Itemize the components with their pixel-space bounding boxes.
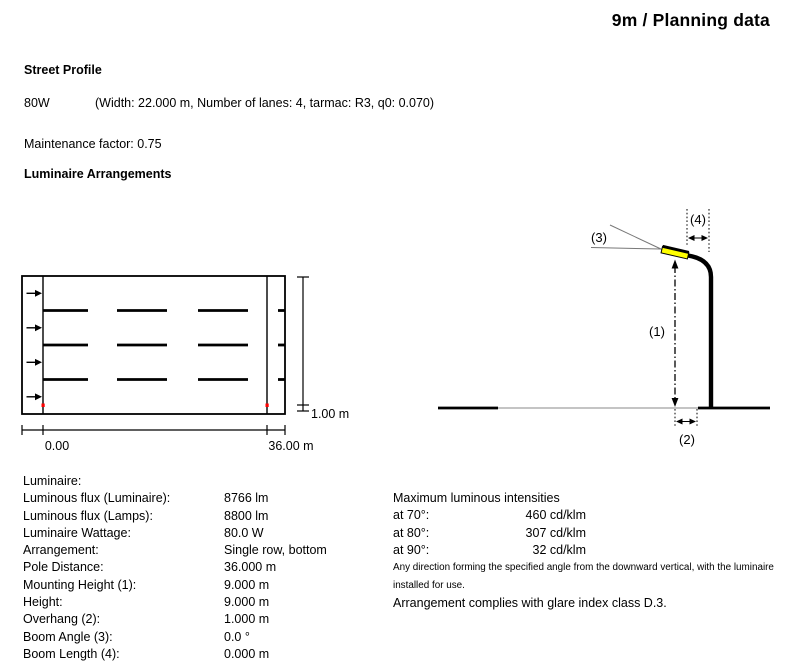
- boom-angle-leader-horizontal: [591, 248, 661, 250]
- page-title: 9m / Planning data: [612, 10, 770, 31]
- intensity-value: 460 cd/klm: [526, 507, 586, 524]
- boom-length-ref-label: (4): [690, 212, 706, 227]
- street-parameters: (Width: 22.000 m, Number of lanes: 4, ta…: [95, 96, 434, 110]
- item-label: Pole Distance:: [23, 559, 224, 576]
- item-value: 8766 lm: [224, 490, 268, 507]
- mounting-height-ref-label: (1): [649, 324, 665, 339]
- overhang-ref-label: (2): [679, 432, 695, 447]
- item-label: Mounting Height (1):: [23, 577, 224, 594]
- item-label: Height:: [23, 594, 224, 611]
- angle-label: at 70°:: [393, 507, 429, 524]
- item-label: Luminaire Wattage:: [23, 525, 224, 542]
- horizontal-dimension: [22, 425, 285, 435]
- list-item: Height: 9.000 m: [23, 594, 393, 611]
- list-heading-row: Luminaire:: [23, 473, 393, 490]
- overhang-dimension: [675, 409, 697, 426]
- origin-label: 0.00: [45, 439, 69, 453]
- item-value: 8800 lm: [224, 508, 268, 525]
- item-value: 0.0 °: [224, 629, 250, 646]
- item-label: Overhang (2):: [23, 611, 224, 628]
- item-value: 9.000 m: [224, 594, 269, 611]
- boom-angle-ref-label: (3): [591, 230, 607, 245]
- arrow-right-icon: [27, 393, 43, 400]
- max-intensities-block: Maximum luminous intensities at 70°: 460…: [393, 490, 791, 612]
- item-value: 80.0 W: [224, 525, 264, 542]
- arrow-right-icon: [27, 359, 43, 366]
- intensity-value: 32 cd/klm: [533, 542, 587, 559]
- glare-compliance-note: Arrangement complies with glare index cl…: [393, 595, 791, 612]
- list-item: Luminous flux (Luminaire): 8766 lm: [23, 490, 393, 507]
- item-label: Boom Length (4):: [23, 646, 224, 663]
- maintenance-factor: Maintenance factor: 0.75: [24, 137, 162, 151]
- street-plan-diagram: 1.00 m 0.00 36.00 m: [0, 250, 370, 465]
- intensities-footnote: Any direction forming the specified angl…: [393, 559, 791, 594]
- item-label: Arrangement:: [23, 542, 224, 559]
- luminaire-head: [661, 246, 689, 259]
- pole-distance-label: 36.00 m: [268, 439, 313, 453]
- boom-angle-leader-slanted: [610, 225, 662, 250]
- luminaire-arrangements-heading: Luminaire Arrangements: [24, 167, 172, 181]
- item-label: Luminous flux (Lamps):: [23, 508, 224, 525]
- list-item: Boom Length (4): 0.000 m: [23, 646, 393, 663]
- verge-width-label: 1.00 m: [311, 407, 349, 421]
- list-item: Luminous flux (Lamps): 8800 lm: [23, 508, 393, 525]
- angle-label: at 90°:: [393, 542, 429, 559]
- item-value: Single row, bottom: [224, 542, 327, 559]
- pole-elevation-diagram: (4) (3) (1) (2): [420, 195, 800, 460]
- intensity-value: 307 cd/klm: [526, 525, 586, 542]
- intensity-row: at 90°: 32 cd/klm: [393, 542, 586, 559]
- item-label: Boom Angle (3):: [23, 629, 224, 646]
- list-item: Mounting Height (1): 9.000 m: [23, 577, 393, 594]
- luminaire-heading: Luminaire:: [23, 473, 81, 490]
- item-label: Luminous flux (Luminaire):: [23, 490, 224, 507]
- drive-direction-arrows: [27, 290, 43, 400]
- street-wattage: 80W: [24, 96, 50, 110]
- luminaire-data-list: Luminaire: Luminous flux (Luminaire): 87…: [23, 473, 393, 663]
- mounting-height-dimension: [672, 260, 679, 408]
- street-profile-heading: Street Profile: [24, 63, 102, 77]
- lane-dividers: [43, 311, 285, 380]
- street-profile-row: 80W (Width: 22.000 m, Number of lanes: 4…: [24, 96, 544, 110]
- pole: [688, 256, 711, 409]
- arrow-right-icon: [27, 290, 43, 297]
- intensity-row: at 70°: 460 cd/klm: [393, 507, 586, 524]
- arrow-right-icon: [27, 324, 43, 331]
- max-intensities-heading: Maximum luminous intensities: [393, 490, 791, 507]
- item-value: 0.000 m: [224, 646, 269, 663]
- item-value: 9.000 m: [224, 577, 269, 594]
- intensity-row: at 80°: 307 cd/klm: [393, 525, 586, 542]
- list-item: Overhang (2): 1.000 m: [23, 611, 393, 628]
- list-item: Arrangement: Single row, bottom: [23, 542, 393, 559]
- list-item: Boom Angle (3): 0.0 °: [23, 629, 393, 646]
- planning-data-page: 9m / Planning data Street Profile 80W (W…: [0, 0, 800, 672]
- item-value: 36.000 m: [224, 559, 276, 576]
- list-item: Pole Distance: 36.000 m: [23, 559, 393, 576]
- item-value: 1.000 m: [224, 611, 269, 628]
- list-item: Luminaire Wattage: 80.0 W: [23, 525, 393, 542]
- luminaire-marker: [266, 404, 269, 408]
- vertical-dimension: [297, 277, 309, 411]
- luminaire-marker: [42, 404, 45, 408]
- angle-label: at 80°:: [393, 525, 429, 542]
